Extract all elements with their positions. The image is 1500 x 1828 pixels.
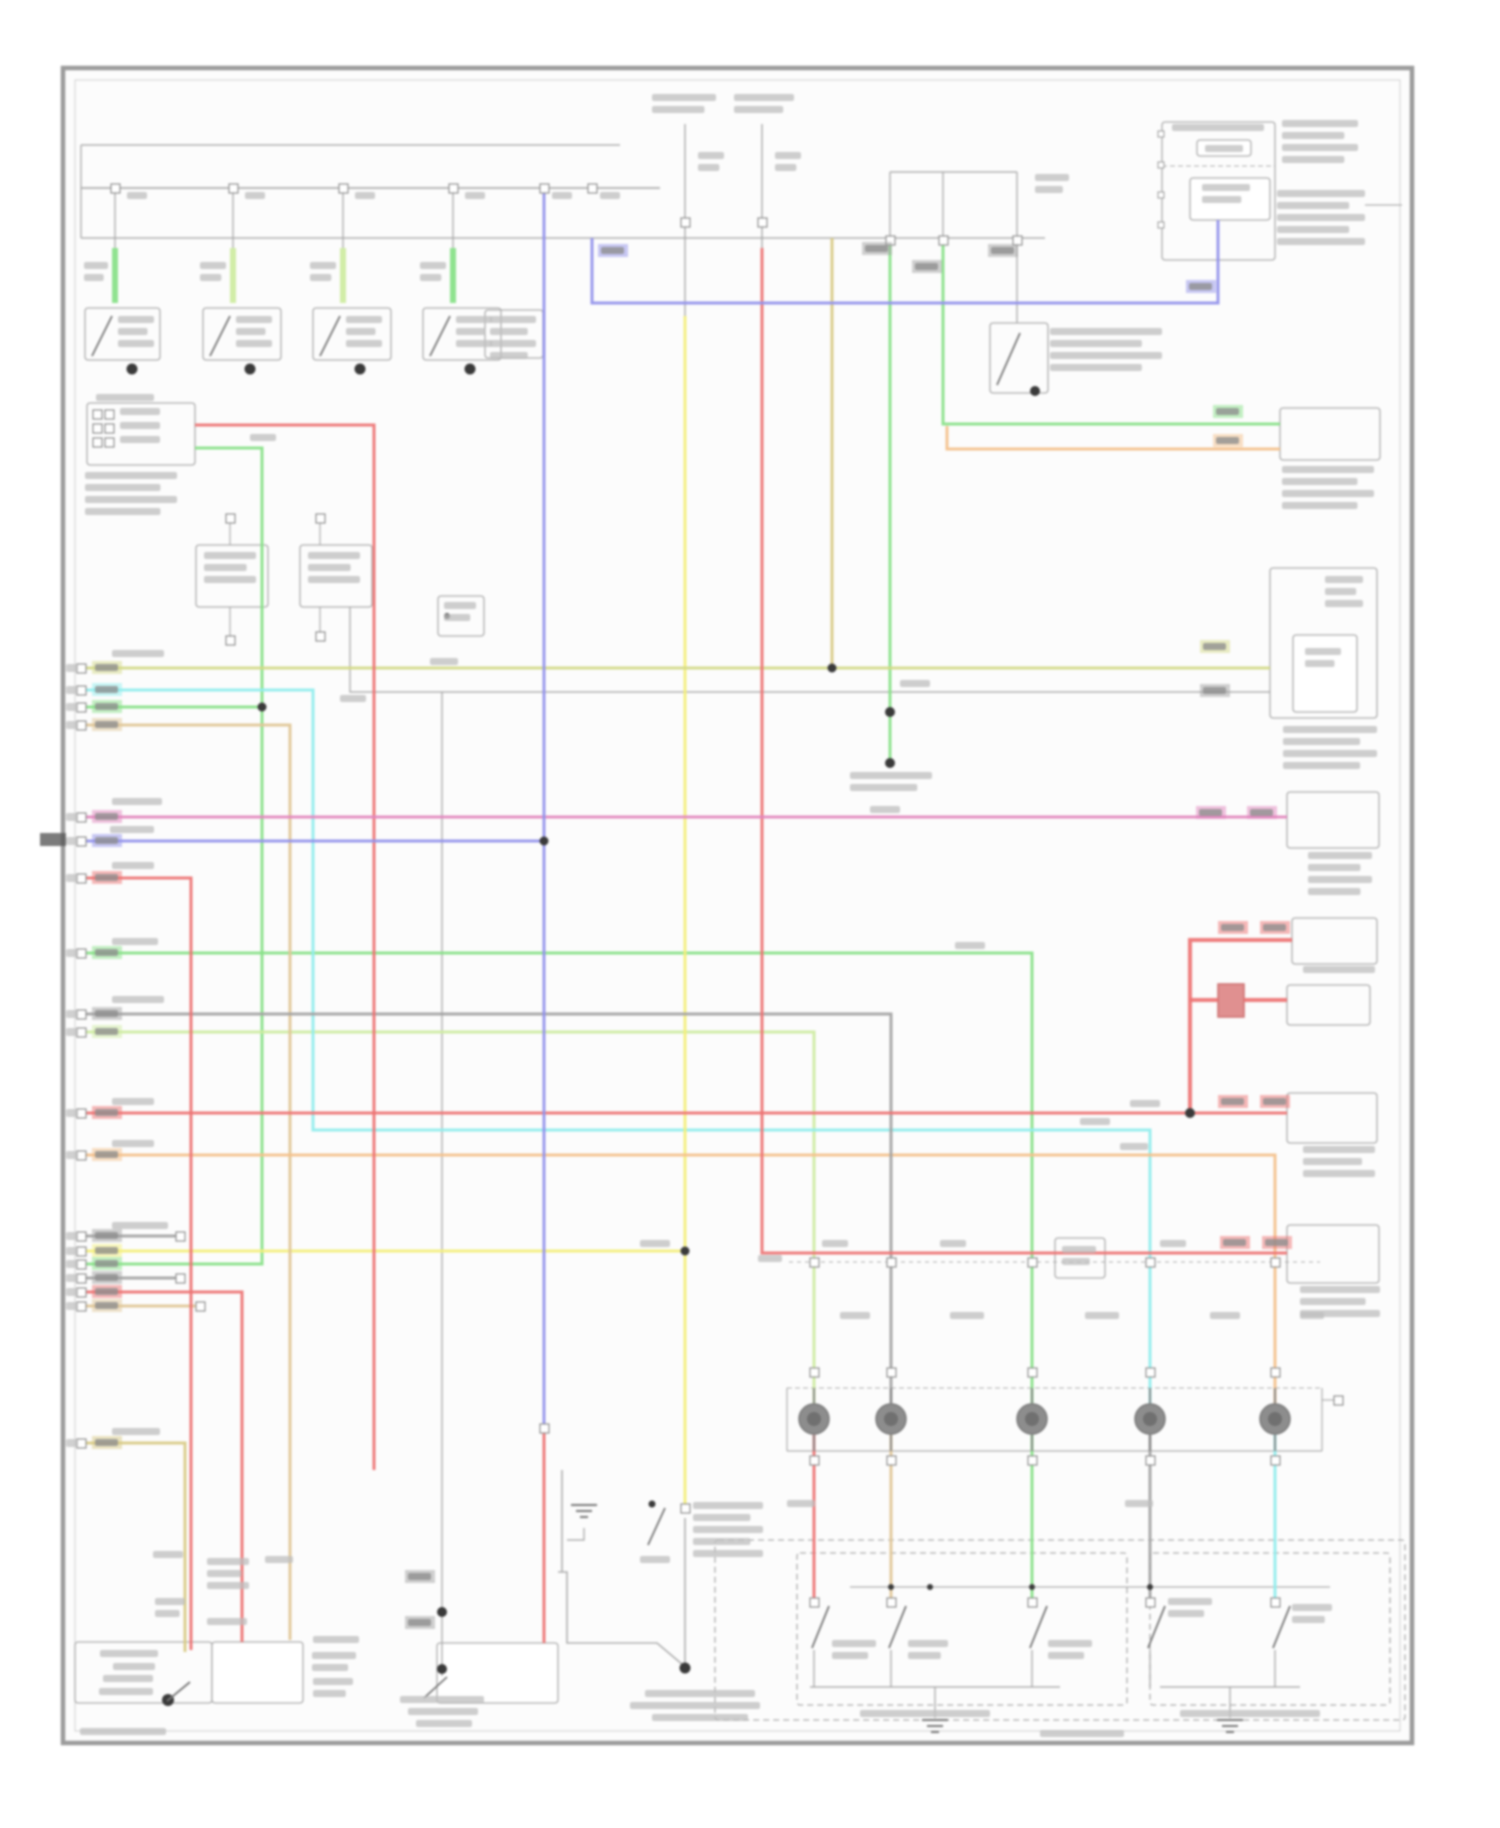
label-line [1277, 190, 1365, 197]
label-line [1305, 660, 1335, 667]
label-line [110, 826, 154, 833]
label-line [1202, 196, 1241, 203]
label-line [1325, 588, 1356, 595]
label-line [1050, 352, 1162, 359]
label-line [1120, 1143, 1148, 1150]
wire-label-text [1216, 437, 1239, 444]
wire-label-text [601, 247, 624, 254]
label-line [1282, 156, 1344, 163]
pin-number [66, 1288, 78, 1296]
label-line [1277, 202, 1349, 209]
pin-number [66, 1010, 78, 1018]
label-line [630, 1702, 760, 1709]
connector-square [77, 721, 86, 730]
label-line [775, 152, 801, 159]
label-line [465, 192, 485, 199]
connector-square [1028, 1368, 1037, 1377]
junction-dot [885, 707, 895, 717]
label-line [1048, 1640, 1092, 1647]
wire-label-text [865, 245, 888, 252]
label-line [200, 262, 226, 269]
wire-label-text [1263, 1098, 1286, 1105]
label-line [1168, 1598, 1212, 1605]
label-line [1303, 1170, 1375, 1177]
connector-square [105, 410, 114, 419]
label-line [85, 484, 160, 491]
label-line [1303, 966, 1375, 973]
label-line [1277, 226, 1349, 233]
connector-square [1028, 1456, 1037, 1465]
label-line [444, 614, 470, 621]
label-line [236, 316, 272, 323]
label-line [1180, 1710, 1320, 1717]
label-line [652, 106, 704, 113]
junction-dot [927, 1584, 933, 1590]
schematic-page [0, 0, 1500, 1828]
label-line [313, 1636, 359, 1643]
label-line [420, 262, 446, 269]
connector-square [540, 1424, 549, 1433]
label-line [1050, 340, 1142, 347]
label-line [204, 576, 256, 583]
connector-square [77, 703, 86, 712]
label-line [420, 274, 441, 281]
connector-square [887, 1368, 896, 1377]
label-line [1202, 184, 1250, 191]
connector-square [1271, 1368, 1280, 1377]
component-box [437, 1643, 558, 1703]
pin-number [66, 1232, 78, 1240]
label-line [1300, 1298, 1366, 1305]
label-line [112, 1428, 160, 1435]
label-line [96, 394, 154, 401]
connector-square [339, 184, 348, 193]
connector-tick [1158, 222, 1164, 228]
label-line [408, 1708, 478, 1715]
connector-square [1334, 1396, 1343, 1405]
label-line [1282, 132, 1344, 139]
wire-label-text [95, 1109, 118, 1116]
connector-square [1028, 1258, 1037, 1267]
wire-label-text [95, 874, 118, 881]
junction-dot [258, 703, 267, 712]
label-line [1303, 1158, 1362, 1165]
label-line [1308, 852, 1372, 859]
label-line [85, 508, 160, 515]
connector-square [810, 1368, 819, 1377]
label-line [1035, 174, 1069, 181]
label-line [416, 1720, 472, 1727]
label-line [236, 328, 266, 335]
wire-label-text [95, 1028, 118, 1035]
connector-square [887, 1456, 896, 1465]
connector-square [1271, 1598, 1280, 1607]
label-line [120, 436, 160, 443]
wire-label-text [95, 703, 118, 710]
wire-label-text [1216, 408, 1239, 415]
label-line [850, 772, 932, 779]
label-line [84, 262, 108, 269]
connector-square [77, 1274, 86, 1283]
label-line [832, 1640, 876, 1647]
label-line [640, 1240, 670, 1247]
connector-square [1146, 1598, 1155, 1607]
label-line [870, 806, 900, 813]
connector-square [681, 1504, 690, 1513]
pin-number [66, 686, 78, 694]
label-line [1062, 1246, 1096, 1253]
label-line [207, 1618, 247, 1625]
label-line [1283, 726, 1377, 733]
wire-label-text [95, 1010, 118, 1017]
label-line [1080, 1118, 1110, 1125]
pin-number [66, 721, 78, 729]
connector-square [1146, 1258, 1155, 1267]
label-line [652, 94, 716, 101]
label-line [1172, 124, 1264, 131]
label-line [822, 1240, 848, 1247]
wire-label-text [95, 1232, 118, 1239]
label-line [645, 1690, 755, 1697]
label-line [490, 316, 536, 323]
wire-label-text [95, 949, 118, 956]
connector-square [77, 837, 86, 846]
wire-label-text [1250, 809, 1273, 816]
wire-label-text [408, 1573, 431, 1580]
wire-label-text [95, 813, 118, 820]
label-line [153, 1551, 183, 1558]
pin-number [66, 837, 78, 845]
connector-square [226, 514, 235, 523]
label-line [400, 1696, 484, 1703]
connector-marker [40, 833, 66, 846]
label-line [1035, 186, 1063, 193]
label-line [652, 1714, 748, 1721]
label-line [456, 340, 492, 347]
junction-dot [888, 1584, 894, 1590]
connector-square [93, 410, 102, 419]
connector-square [176, 1232, 185, 1241]
wire-label-text [1265, 1239, 1288, 1246]
label-line [1085, 1312, 1119, 1319]
pin-number [66, 813, 78, 821]
connector-square [810, 1258, 819, 1267]
connector-square [77, 1232, 86, 1241]
label-line [1205, 145, 1243, 152]
label-line [955, 942, 985, 949]
wire-label-text [95, 1439, 118, 1446]
label-line [1308, 876, 1372, 883]
label-line [950, 1312, 984, 1319]
bulb-core-icon [1143, 1412, 1157, 1426]
label-line [1168, 1610, 1204, 1617]
label-line [245, 192, 265, 199]
label-line [840, 1312, 870, 1319]
label-line [207, 1582, 249, 1589]
label-line [200, 274, 221, 281]
label-line [120, 422, 160, 429]
label-line [908, 1640, 948, 1647]
label-line [308, 576, 360, 583]
label-line [85, 496, 177, 503]
wire-label-text [1199, 809, 1222, 816]
label-line [908, 1652, 941, 1659]
label-line [698, 164, 719, 171]
connector-square [77, 1151, 86, 1160]
label-line [456, 328, 486, 335]
junction-dot [355, 364, 366, 375]
label-line [1303, 1146, 1375, 1153]
label-line [693, 1538, 750, 1545]
bulb-core-icon [1268, 1412, 1282, 1426]
label-line [734, 94, 794, 101]
pin-number [66, 1028, 78, 1036]
component-box [212, 1642, 303, 1703]
connector-square [588, 184, 597, 193]
pin-number [66, 1260, 78, 1268]
pin-number [66, 949, 78, 957]
label-line [1305, 648, 1341, 655]
connector-square [1271, 1258, 1280, 1267]
connector-square [226, 636, 235, 645]
label-line [118, 328, 148, 335]
wire-label-text [95, 664, 118, 671]
junction-dot [1185, 1108, 1195, 1118]
label-line [313, 1690, 346, 1697]
junction-dot [885, 758, 895, 768]
label-line [1282, 144, 1358, 151]
label-line [430, 658, 458, 665]
pin-number [66, 1302, 78, 1310]
connector-square [77, 1010, 86, 1019]
connector-square [77, 664, 86, 673]
connector-square [758, 218, 767, 227]
pin-number [66, 874, 78, 882]
label-line [310, 262, 336, 269]
label-line [775, 164, 796, 171]
junction-dot [437, 1607, 447, 1617]
connector-square [196, 1302, 205, 1311]
label-line [693, 1502, 763, 1509]
label-line [346, 316, 382, 323]
label-line [693, 1550, 763, 1557]
pin-number [66, 1247, 78, 1255]
label-line [85, 472, 177, 479]
label-line [1325, 576, 1363, 583]
wire-label-text [1203, 643, 1226, 650]
connector-square [77, 1302, 86, 1311]
label-line [155, 1598, 185, 1605]
label-line [698, 152, 724, 159]
label-line [204, 564, 247, 571]
connector-square [105, 424, 114, 433]
junction-dot [127, 364, 138, 375]
connector-square [810, 1456, 819, 1465]
connector-square [939, 236, 948, 245]
connector-square [77, 949, 86, 958]
connector-square [77, 1288, 86, 1297]
label-line [1210, 1312, 1240, 1319]
connector-square [1146, 1456, 1155, 1465]
label-line [1308, 888, 1360, 895]
connector-square [316, 514, 325, 523]
label-line [250, 434, 276, 441]
label-line [346, 340, 382, 347]
label-line [112, 996, 164, 1003]
label-line [1050, 328, 1162, 335]
connector-square [111, 184, 120, 193]
wire-label-text [95, 1274, 118, 1281]
junction-dot [245, 364, 256, 375]
wire-label-text [1203, 687, 1226, 694]
label-line [204, 552, 256, 559]
connector-square [93, 424, 102, 433]
connector-square [810, 1598, 819, 1607]
junction-dot [1030, 386, 1040, 396]
label-line [1283, 738, 1360, 745]
label-line [155, 1610, 180, 1617]
connector-tick [1158, 131, 1164, 137]
label-line [693, 1526, 763, 1533]
wire-label-text [95, 686, 118, 693]
label-line [1277, 238, 1365, 245]
junction-dot [1147, 1584, 1153, 1590]
pin-number [66, 1439, 78, 1447]
connector-square [1013, 236, 1022, 245]
connector-square [105, 438, 114, 447]
label-line [80, 1728, 166, 1735]
connector-square [1271, 1456, 1280, 1465]
junction-dot [828, 664, 837, 673]
label-line [112, 1140, 154, 1147]
label-line [490, 328, 528, 335]
label-line [1282, 120, 1358, 127]
label-line [1130, 1100, 1160, 1107]
label-line [120, 408, 160, 415]
label-line [1300, 1312, 1324, 1319]
connector-tick [1158, 162, 1164, 168]
junction-dot [680, 1663, 691, 1674]
junction-dot [649, 1501, 656, 1508]
connector-square [93, 438, 102, 447]
label-line [99, 1688, 153, 1695]
label-line [112, 862, 154, 869]
wire-label-text [95, 1247, 118, 1254]
pin-number [66, 1274, 78, 1282]
label-line [113, 1663, 155, 1670]
label-line [1325, 600, 1363, 607]
connector-square [176, 1274, 185, 1283]
connector-square [77, 1439, 86, 1448]
label-line [900, 680, 930, 687]
label-line [355, 192, 375, 199]
label-line [118, 316, 154, 323]
connector-square [887, 1598, 896, 1607]
connector-square [449, 184, 458, 193]
label-line [312, 1652, 356, 1659]
wire-label-text [95, 1260, 118, 1267]
label-line [112, 1098, 154, 1105]
label-line [1292, 1604, 1332, 1611]
red-component-box [1218, 984, 1244, 1017]
label-line [1282, 466, 1374, 473]
wire-label-text [408, 1619, 431, 1626]
label-line [100, 1650, 158, 1657]
wire-label-text [1221, 1098, 1244, 1105]
label-line [312, 1664, 348, 1671]
junction-dot [465, 364, 476, 375]
connector-square [681, 218, 690, 227]
label-line [1062, 1258, 1090, 1265]
label-line [1050, 364, 1142, 371]
label-line [313, 1678, 353, 1685]
label-line [1125, 1500, 1153, 1507]
label-line [308, 564, 351, 571]
connector-square [77, 1260, 86, 1269]
wire-label-text [95, 721, 118, 728]
component-box [1293, 635, 1357, 712]
connector-tick [1158, 192, 1164, 198]
label-line [1160, 1240, 1186, 1247]
label-line [1283, 750, 1377, 757]
label-line [265, 1556, 293, 1563]
label-line [444, 602, 476, 609]
label-line [103, 1675, 153, 1682]
label-line [1300, 1286, 1380, 1293]
connector-square [77, 1109, 86, 1118]
label-line [734, 106, 783, 113]
pin-number [66, 1109, 78, 1117]
label-line [860, 1710, 990, 1717]
label-line [1277, 214, 1365, 221]
label-line [1282, 502, 1357, 509]
connector-square [1146, 1368, 1155, 1377]
wire-label-text [1221, 924, 1244, 931]
connector-square [77, 874, 86, 883]
connector-square [887, 1258, 896, 1267]
label-line [850, 784, 917, 791]
wire-label-text [991, 247, 1014, 254]
label-line [118, 340, 154, 347]
label-line [1308, 864, 1360, 871]
connector-square [77, 686, 86, 695]
junction-dot [437, 1664, 447, 1674]
label-line [1282, 478, 1357, 485]
pin-number [66, 703, 78, 711]
label-line [640, 1556, 670, 1563]
wiring-diagram [0, 0, 1500, 1828]
label-line [1040, 1730, 1124, 1737]
pin-number [66, 664, 78, 672]
label-line [490, 340, 536, 347]
wire-label-text [95, 1302, 118, 1309]
label-line [236, 340, 272, 347]
label-line [552, 192, 572, 199]
connector-square [316, 632, 325, 641]
connector-square [77, 813, 86, 822]
label-line [1048, 1652, 1084, 1659]
wire-label-text [95, 1151, 118, 1158]
bulb-core-icon [884, 1412, 898, 1426]
label-line [490, 352, 528, 359]
junction-dot [540, 837, 549, 846]
label-line [1283, 762, 1360, 769]
label-line [207, 1570, 241, 1577]
wire-label-text [95, 837, 118, 844]
label-line [758, 1255, 782, 1262]
label-line [310, 274, 331, 281]
bulb-core-icon [1025, 1412, 1039, 1426]
